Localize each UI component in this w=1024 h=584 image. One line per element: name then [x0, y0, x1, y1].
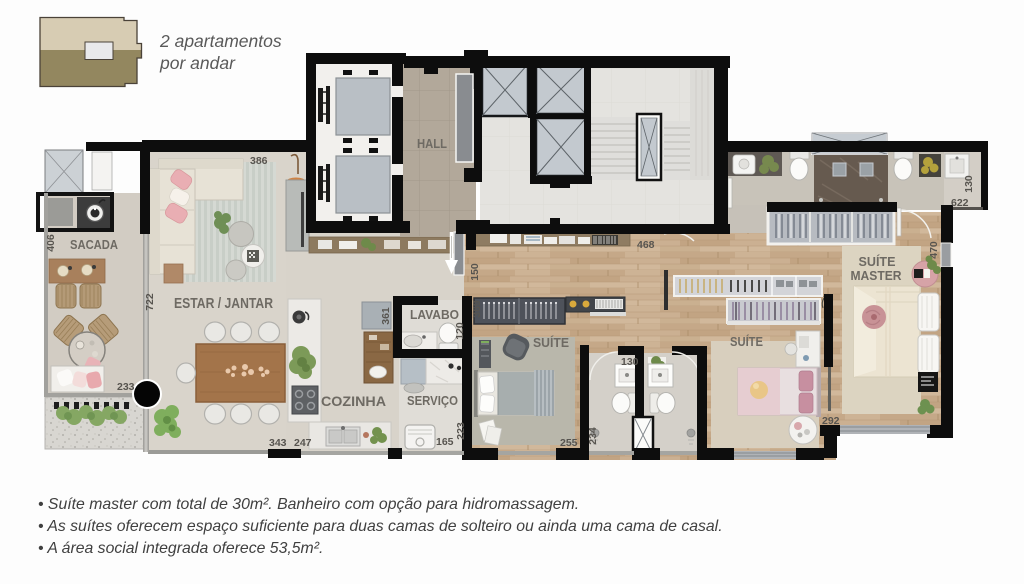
svg-text:223: 223	[455, 422, 467, 440]
svg-text:468: 468	[637, 239, 655, 251]
svg-text:HALL: HALL	[417, 136, 447, 151]
svg-text:233: 233	[117, 381, 135, 393]
svg-text:COZINHA: COZINHA	[321, 394, 386, 409]
svg-text:130: 130	[963, 175, 975, 193]
svg-text:120: 120	[454, 322, 466, 340]
svg-text:ESTAR / JANTAR: ESTAR / JANTAR	[174, 296, 273, 312]
svg-text:150: 150	[469, 263, 481, 281]
svg-text:247: 247	[294, 437, 312, 449]
svg-text:MASTER: MASTER	[851, 268, 903, 283]
svg-text:369: 369	[471, 300, 483, 318]
svg-text:622: 622	[951, 197, 969, 209]
svg-text:470: 470	[928, 241, 940, 259]
svg-text:SUÍTE: SUÍTE	[859, 254, 896, 269]
svg-text:LAVABO: LAVABO	[410, 307, 459, 322]
svg-text:• As suítes oferecem espaço su: • As suítes oferecem espaço suficiente p…	[38, 518, 723, 535]
svg-text:406: 406	[45, 234, 57, 252]
svg-text:292: 292	[822, 415, 840, 427]
svg-text:343: 343	[269, 437, 287, 449]
svg-text:722: 722	[144, 293, 156, 311]
svg-text:165: 165	[436, 436, 454, 448]
svg-text:SERVIÇO: SERVIÇO	[407, 394, 458, 408]
svg-text:por andar: por andar	[159, 53, 236, 73]
svg-text:130: 130	[621, 356, 639, 368]
svg-text:255: 255	[560, 437, 578, 449]
svg-text:2 apartamentos: 2 apartamentos	[159, 31, 282, 51]
svg-text:• A área social integrada ofer: • A área social integrada oferece 53,5m²…	[38, 540, 323, 557]
svg-text:386: 386	[250, 155, 268, 167]
svg-text:361: 361	[380, 307, 392, 325]
svg-text:SUÍTE: SUÍTE	[533, 335, 569, 350]
svg-text:234: 234	[587, 427, 599, 445]
svg-text:SACADA: SACADA	[70, 238, 118, 252]
svg-text:• Suíte master com total de 30: • Suíte master com total de 30m². Banhei…	[38, 496, 579, 513]
svg-text:SUÍTE: SUÍTE	[730, 334, 763, 349]
